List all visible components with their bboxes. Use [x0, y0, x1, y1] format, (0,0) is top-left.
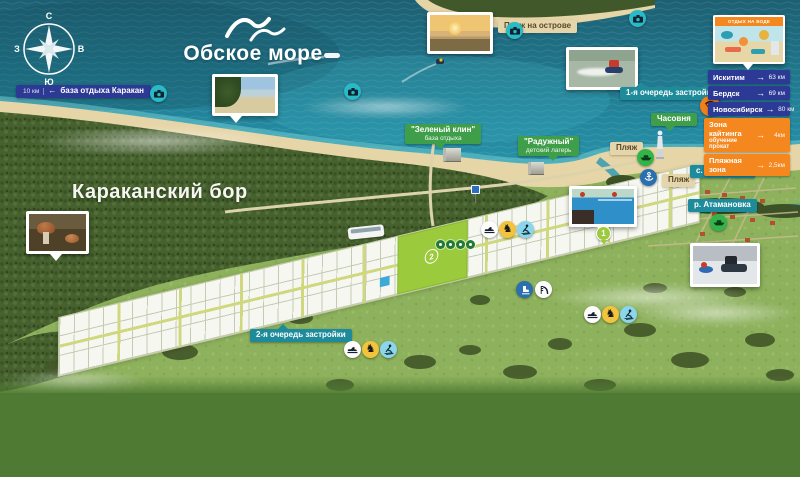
amenity-icon — [446, 240, 455, 249]
raduzhny-sub: детский лагерь — [524, 147, 573, 154]
pointer — [548, 156, 558, 161]
chapel-label: Часовня — [651, 113, 697, 126]
compass-west: З — [14, 44, 20, 54]
ecopark-map: 2 1 С Ю З В Обское море Караканский бор … — [0, 0, 800, 477]
horse-icon: ♞ — [602, 306, 619, 323]
forest-title: Караканский бор — [72, 181, 248, 204]
city-distance: 80 км — [778, 106, 795, 113]
camera-icon — [506, 22, 523, 39]
map-fade — [0, 376, 800, 394]
kiting-zone-name: Зона кайтинга — [709, 120, 753, 138]
poster-water-activities: ОТДЫХ НА ВОДЕ — [713, 15, 785, 64]
skates-icon — [516, 281, 533, 298]
atamanovka-label: р. Атамановка — [688, 199, 757, 212]
chapel-statue — [653, 128, 667, 160]
compass-north: С — [46, 11, 53, 21]
horse-glyph: ♞ — [366, 344, 376, 355]
legend-panel: Площадки для катания на мототехнике ♞ Пл… — [0, 393, 800, 477]
arrow-right-icon: → — [756, 88, 765, 98]
boat-launch-icon — [637, 149, 654, 166]
camera-icon — [629, 10, 646, 27]
beach-zone-distance: 2,5км — [768, 162, 785, 169]
raduzhny-building — [528, 162, 544, 175]
anchor-icon — [640, 169, 657, 186]
compass-rose: С Ю З В — [10, 8, 88, 86]
ski-icon — [380, 341, 397, 358]
pointer — [50, 254, 62, 261]
city-name: Бердск — [713, 89, 753, 98]
arrow-right-icon: → — [756, 72, 765, 82]
karakan-name: база отдыха Каракан — [60, 87, 144, 96]
arrow-left-icon: ← — [48, 87, 56, 96]
stage2-label: 2-я очередь застройки — [250, 329, 352, 342]
ski-icon — [517, 221, 534, 238]
bird-logo-icon — [215, 10, 291, 44]
city-name: Искитим — [713, 73, 753, 82]
chapel-name: Часовня — [657, 114, 691, 123]
pointer — [278, 324, 288, 329]
camera-icon — [344, 83, 361, 100]
pointer — [665, 126, 675, 131]
stage2-text: 2-я очередь застройки — [256, 330, 346, 339]
distance-row-kiting: Зона кайтинга обучение прокат → 4км — [704, 118, 790, 152]
pond-cell — [380, 276, 390, 288]
horse-icon: ♞ — [499, 221, 516, 238]
distance-row-beach-zone: Пляжная зона → 2,5км — [704, 154, 790, 176]
amenity-icon — [466, 240, 475, 249]
city-distance: 69 км — [768, 90, 785, 97]
zone-1-badge: 1 — [601, 229, 605, 238]
distance-row-iskitim: Искитим → 63 км — [708, 70, 790, 84]
compass-east: В — [78, 44, 85, 54]
amenity-icon — [456, 240, 465, 249]
photo-snowmobile-ride — [690, 243, 760, 287]
stage1-text: 1-я очередь застройки — [626, 88, 716, 97]
beach-zone-name: Пляжная зона — [709, 156, 753, 174]
amenity-icon — [436, 240, 445, 249]
karakan-base-label: 10 км ← база отдыха Каракан — [16, 85, 151, 98]
photo-pool — [569, 186, 637, 227]
playground-slide-icon — [535, 281, 552, 298]
horse-glyph: ♞ — [503, 224, 513, 235]
snowmobile-icon — [344, 341, 361, 358]
city-distance: 63 км — [768, 74, 785, 81]
green-klin-name: "Зеленый клин" — [411, 125, 475, 134]
poster-title: ОТДЫХ НА ВОДЕ — [715, 17, 783, 26]
kiting-zone-sub: обучение прокат — [709, 138, 753, 150]
green-klin-sub: база отдыха — [411, 135, 475, 142]
green-klin-label: "Зеленый клин" база отдыха — [405, 124, 481, 144]
arrow-right-icon: → — [756, 130, 765, 140]
ski-icon — [620, 306, 637, 323]
raduzhny-label: "Радужный" детский лагерь — [518, 136, 579, 156]
zone-1-pin: 1 — [596, 226, 611, 241]
horse-glyph: ♞ — [606, 309, 616, 320]
distance-panel: Искитим → 63 км Бердск → 69 км Новосибир… — [704, 70, 790, 176]
distance-row-berdsk: Бердск → 69 км — [708, 86, 790, 100]
zone-2-badge: 2 — [425, 248, 439, 266]
camera-icon — [150, 85, 167, 102]
photo-wakeboarding — [566, 47, 638, 90]
city-name: Новосибирск — [713, 105, 763, 114]
photo-karakan-beach — [212, 74, 278, 116]
sea-title: Обское море — [183, 42, 323, 66]
boat-launch-icon — [710, 214, 727, 231]
horse-icon: ♞ — [362, 341, 379, 358]
raduzhny-name: "Радужный" — [524, 137, 573, 146]
karakan-distance: 10 км — [23, 88, 44, 95]
kiting-distance: 4км — [768, 132, 785, 139]
photo-mushrooms — [26, 211, 89, 254]
pointer — [435, 144, 445, 149]
green-klin-building — [443, 148, 461, 162]
pointer — [636, 82, 646, 87]
arrow-right-icon: → — [756, 160, 765, 170]
pin-tail — [601, 240, 607, 245]
bus-stop-sign — [471, 185, 480, 194]
photo-sunset-beach — [427, 12, 493, 54]
pointer — [230, 116, 242, 123]
snowmobile-icon — [481, 221, 498, 238]
snowmobile-icon — [584, 306, 601, 323]
distance-row-novosibirsk: Новосибирск → 80 км — [708, 102, 790, 116]
arrow-right-icon: → — [766, 104, 775, 114]
